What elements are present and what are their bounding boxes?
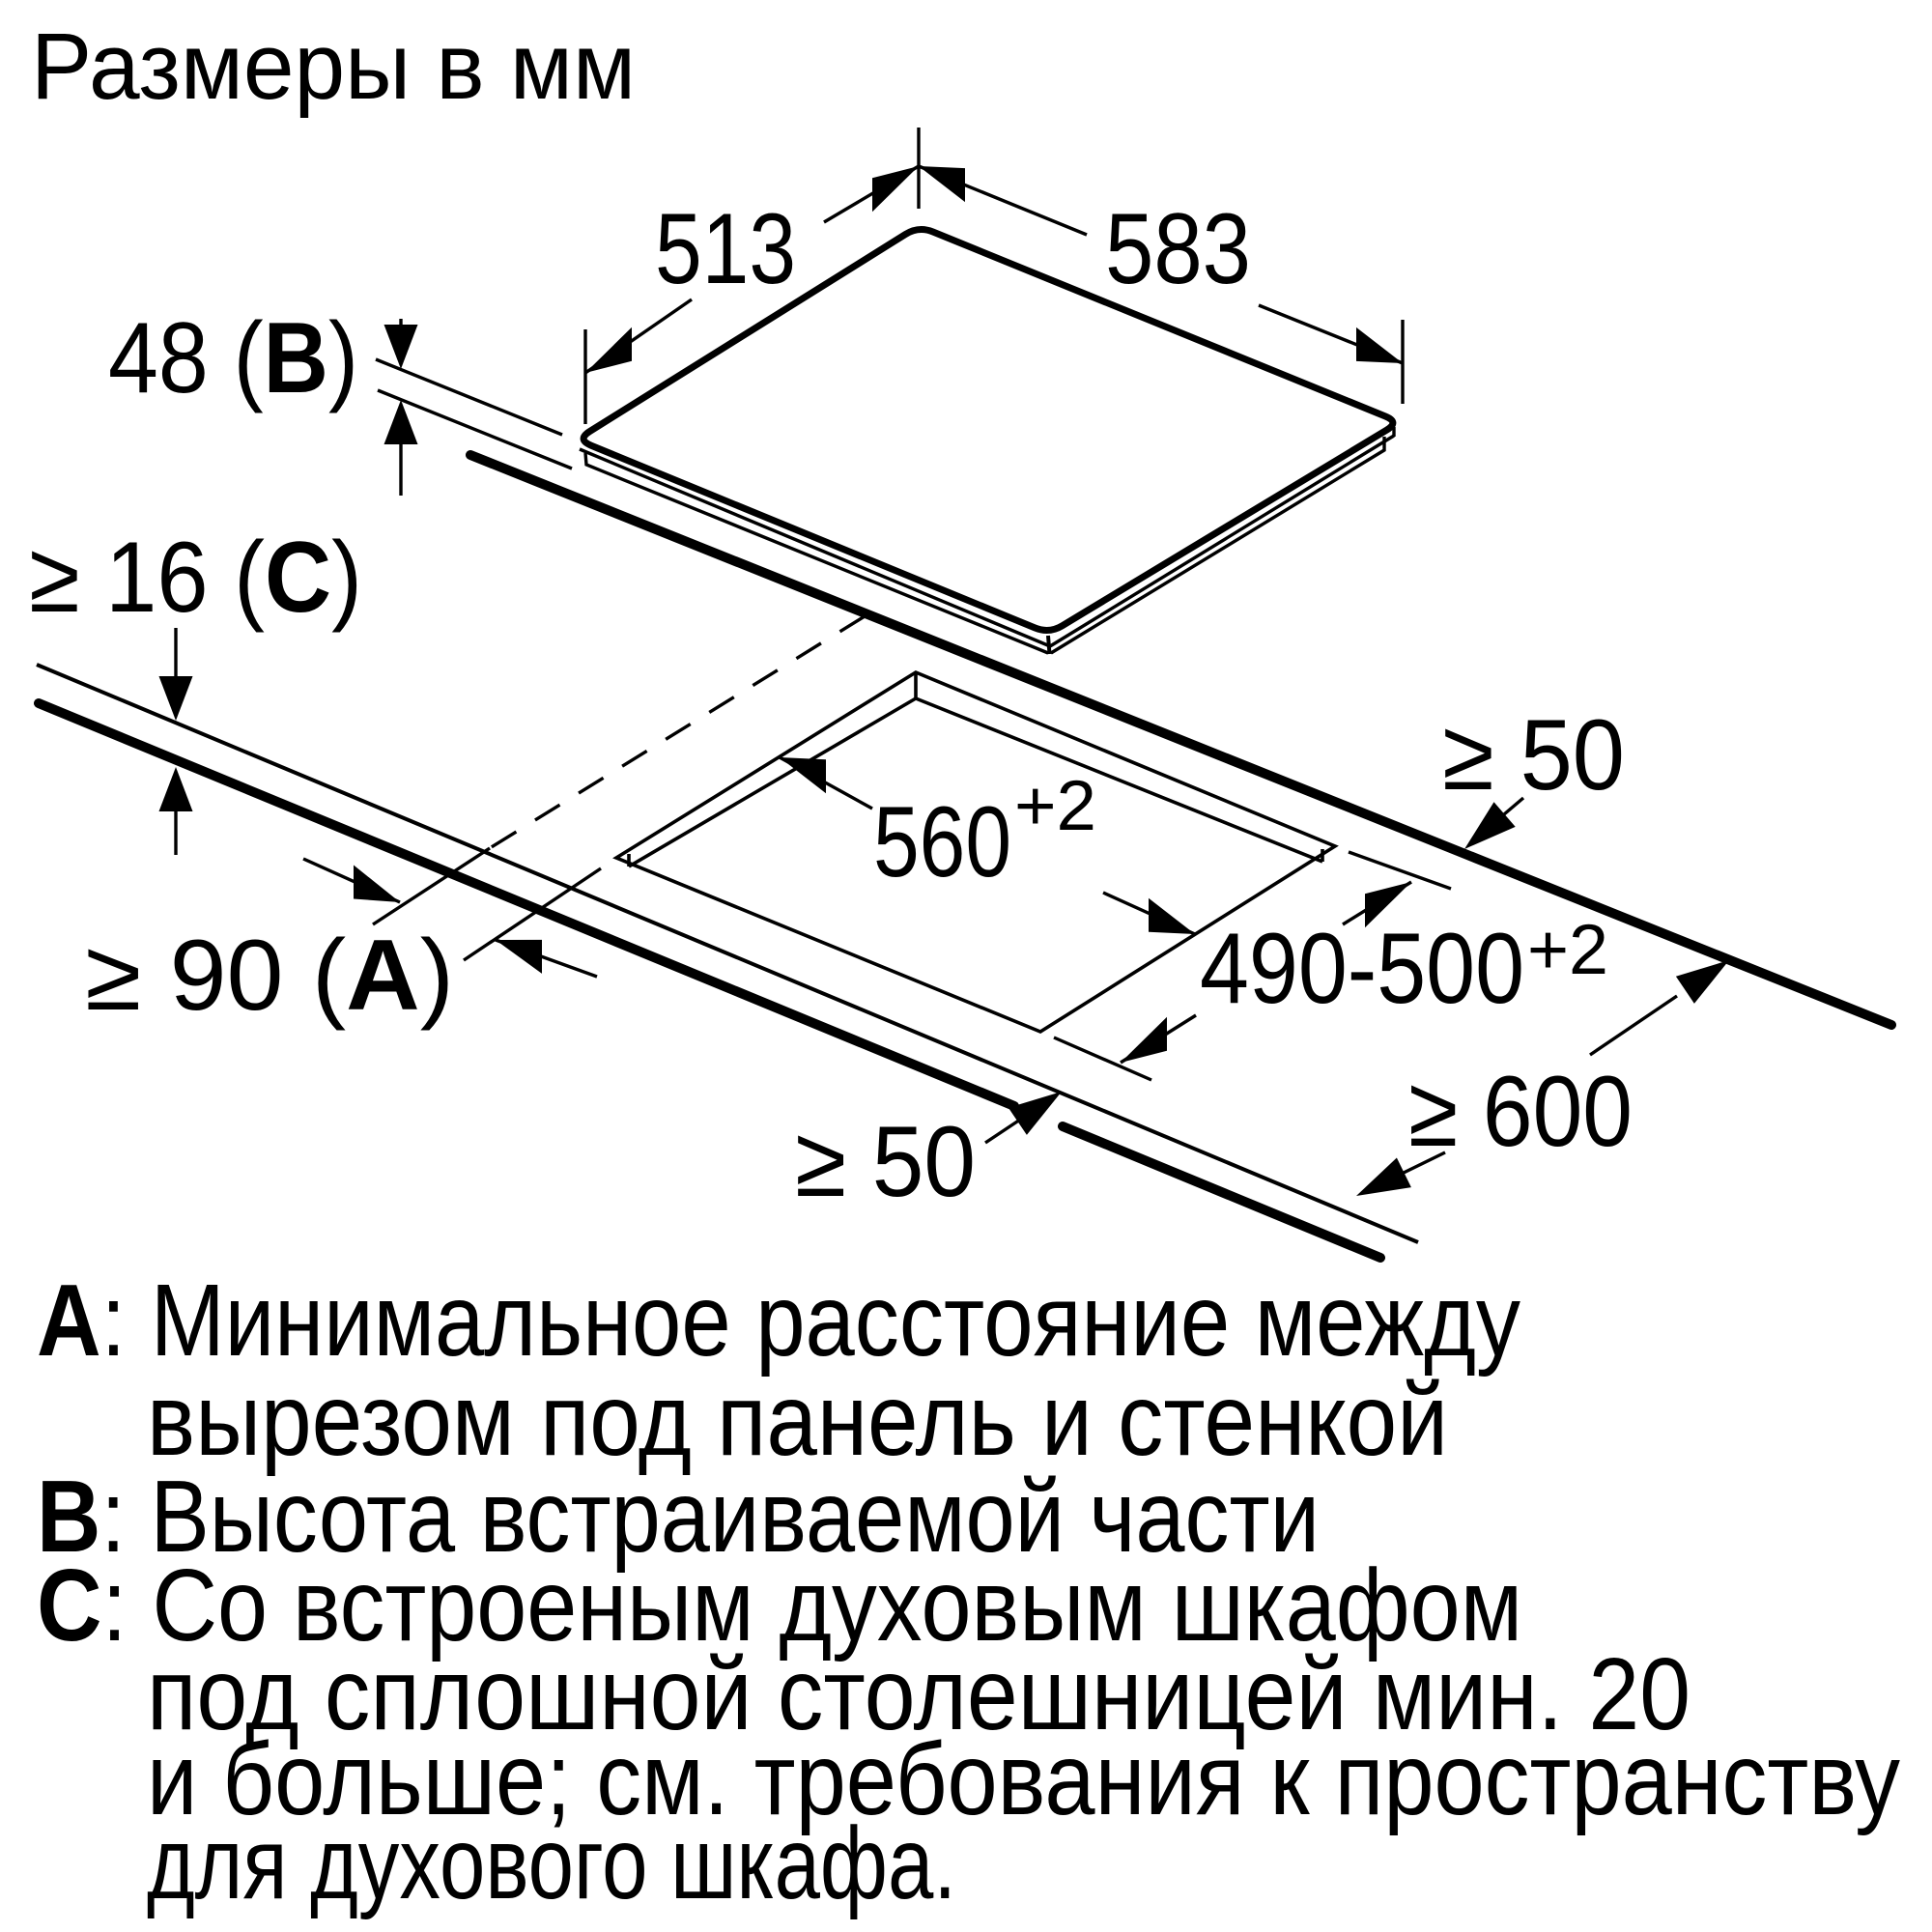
svg-text:490-500: 490-500 (1200, 913, 1524, 1025)
svg-text:≥ 50: ≥ 50 (1442, 699, 1625, 811)
svg-text:≥ 50: ≥ 50 (795, 1106, 976, 1218)
svg-text:+2: +2 (1014, 767, 1096, 845)
svg-text:для духового шкафа.: для духового шкафа. (147, 1806, 956, 1920)
svg-text:583: 583 (1105, 193, 1251, 305)
svg-text:48 (B): 48 (B) (108, 302, 358, 414)
svg-text:≥ 600: ≥ 600 (1408, 1056, 1633, 1168)
svg-text:+2: +2 (1527, 911, 1608, 989)
svg-text:Размеры в мм: Размеры в мм (31, 14, 636, 119)
svg-text:≥ 90 (A): ≥ 90 (A) (85, 920, 454, 1032)
svg-text:≥ 16 (C): ≥ 16 (C) (29, 522, 362, 634)
svg-text:513: 513 (655, 193, 796, 305)
svg-text:560: 560 (873, 786, 1011, 898)
svg-text:А: Минимальное расстояние межд: А: Минимальное расстояние между (37, 1264, 1520, 1378)
